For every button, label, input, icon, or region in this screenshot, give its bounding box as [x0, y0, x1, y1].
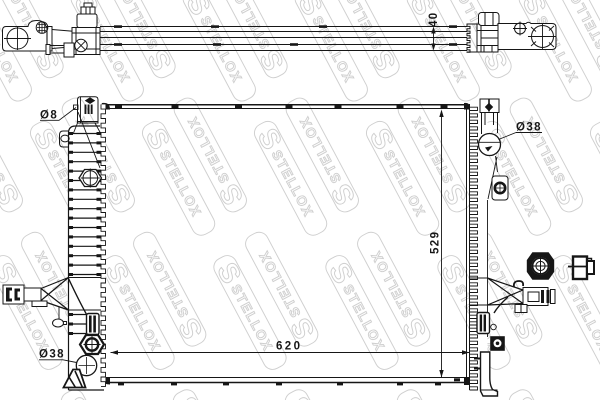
- svg-text:40: 40: [428, 11, 440, 27]
- svg-text:529: 529: [429, 231, 441, 254]
- svg-text:620: 620: [276, 341, 302, 353]
- svg-text:Ø38: Ø38: [39, 349, 65, 361]
- svg-text:Ø8: Ø8: [40, 109, 58, 121]
- svg-text:Ø38: Ø38: [516, 122, 542, 134]
